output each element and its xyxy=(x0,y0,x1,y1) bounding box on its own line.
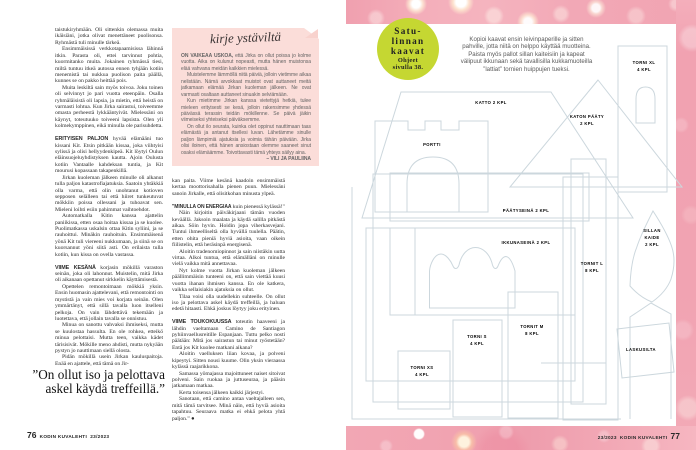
svg-text:TORNIT L: TORNIT L xyxy=(581,261,603,266)
svg-text:PORTTI: PORTTI xyxy=(423,142,441,147)
svg-text:TORNIT M: TORNIT M xyxy=(520,324,543,329)
svg-text:KAIDE: KAIDE xyxy=(644,235,659,240)
svg-text:TORNI XS: TORNI XS xyxy=(411,365,434,370)
svg-text:4 KPL: 4 KPL xyxy=(637,67,651,72)
svg-text:4 KPL: 4 KPL xyxy=(415,372,429,377)
svg-text:2 KPL: 2 KPL xyxy=(645,242,659,247)
svg-text:SILLAN: SILLAN xyxy=(643,228,661,233)
svg-text:8 KPL: 8 KPL xyxy=(525,331,539,336)
svg-text:KATON PÄÄTY: KATON PÄÄTY xyxy=(570,114,604,119)
svg-text:2 KPL: 2 KPL xyxy=(580,121,594,126)
svg-text:IKKUNASEINÄ 2 KPL: IKKUNASEINÄ 2 KPL xyxy=(502,240,551,245)
svg-text:TORNI XL: TORNI XL xyxy=(633,60,656,65)
svg-text:PÄÄTYSEINÄ 2 KPL: PÄÄTYSEINÄ 2 KPL xyxy=(503,208,549,213)
svg-text:TORNI S: TORNI S xyxy=(467,334,487,339)
svg-text:4 KPL: 4 KPL xyxy=(470,341,484,346)
svg-text:8 KPL: 8 KPL xyxy=(585,268,599,273)
svg-text:LASKUSILTA: LASKUSILTA xyxy=(626,347,656,352)
svg-text:KATTO 2 KPL: KATTO 2 KPL xyxy=(475,100,507,105)
